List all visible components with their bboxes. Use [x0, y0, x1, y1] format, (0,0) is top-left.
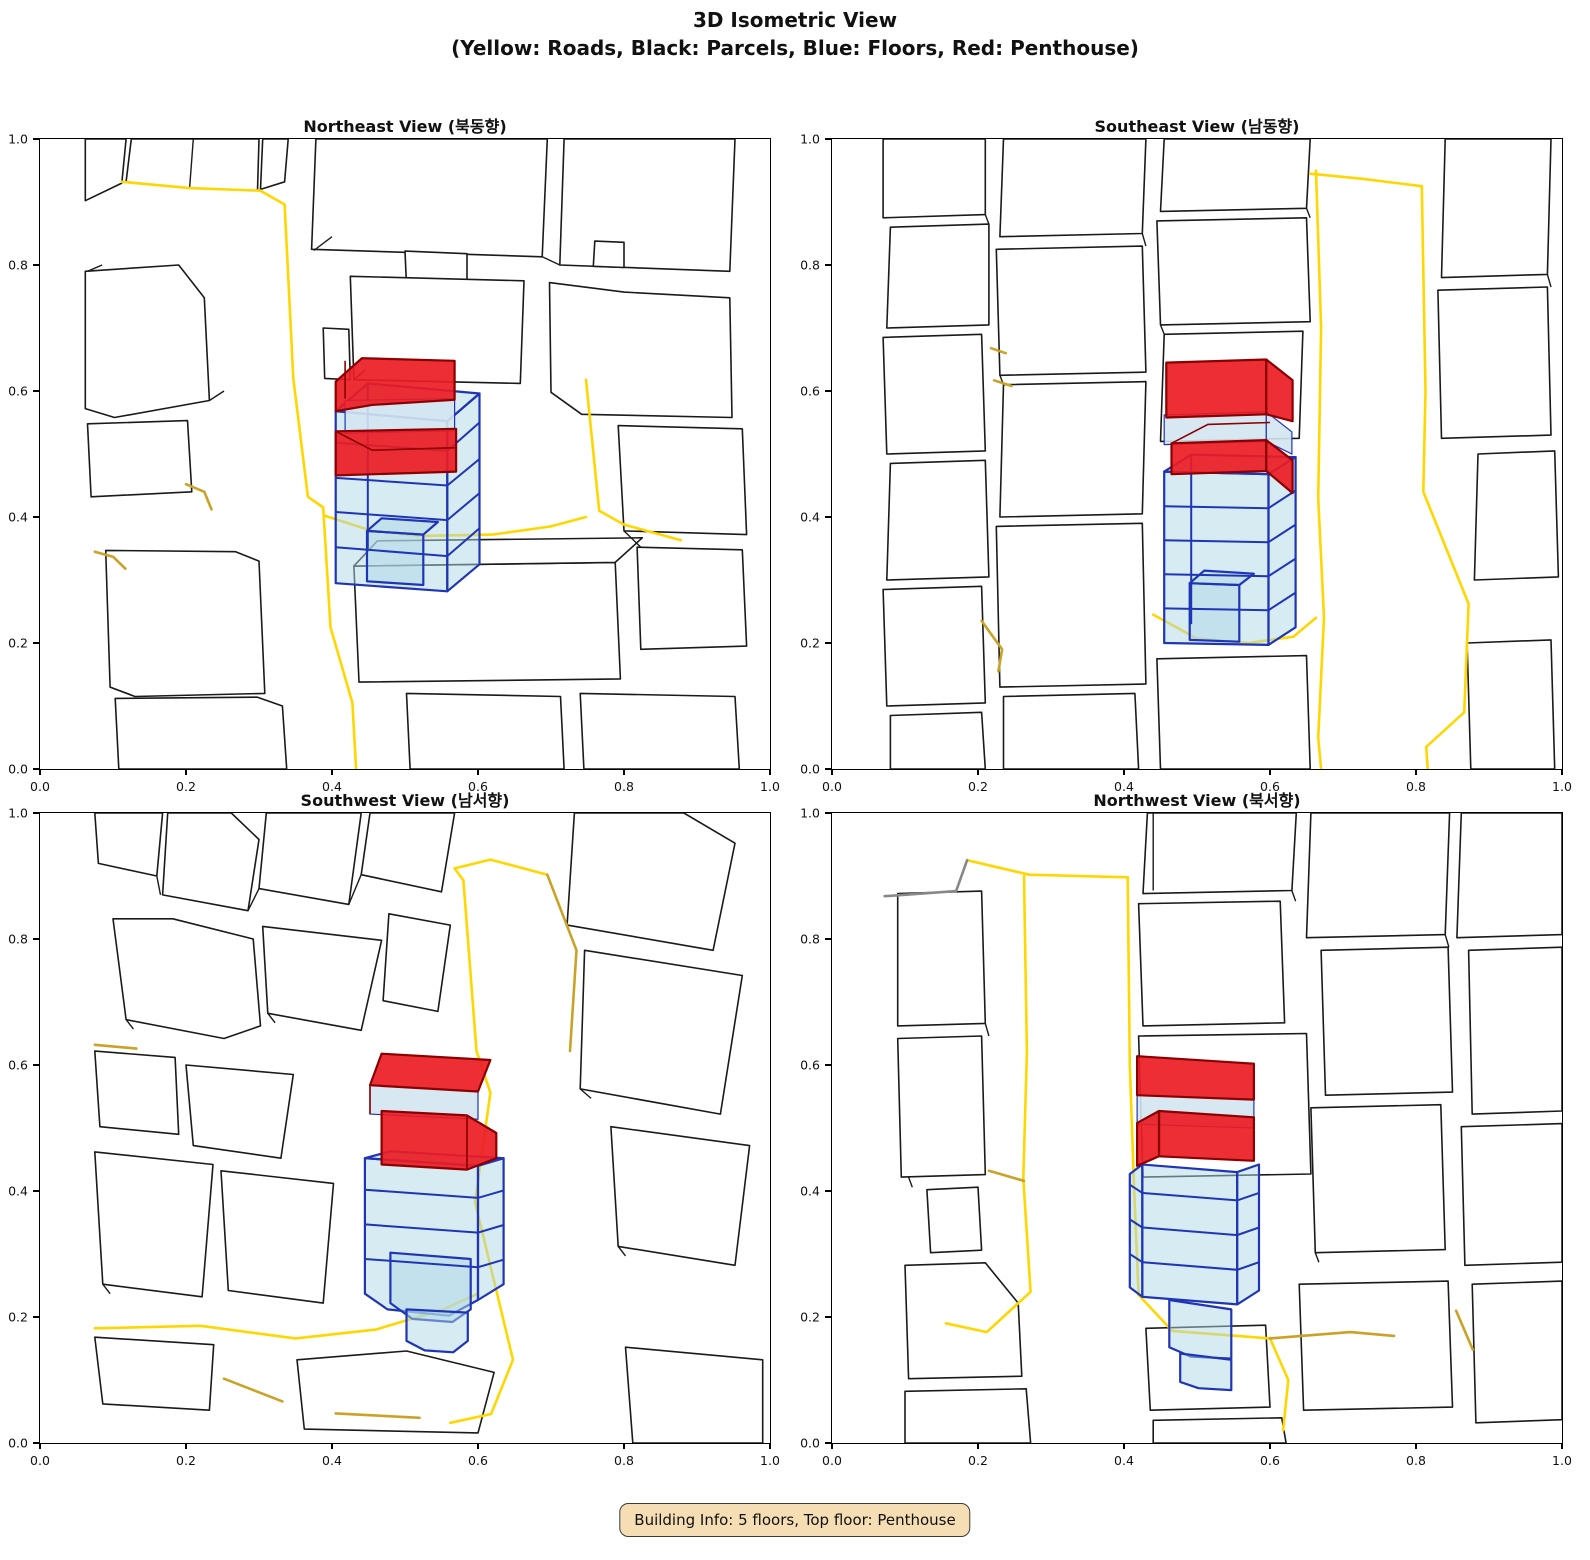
- y-tick-mark: [33, 938, 39, 940]
- y-tick-label: 0.8: [0, 932, 28, 947]
- x-tick-mark: [185, 769, 187, 775]
- y-tick-mark: [825, 812, 831, 814]
- parcel: [550, 283, 733, 418]
- subplot-southwest: Southwest View (남서향) 0.00.00.20.20.40.40…: [39, 812, 771, 1444]
- x-tick-label: 0.4: [1114, 1453, 1134, 1468]
- y-tick-mark: [33, 1064, 39, 1066]
- y-tick-label: 0.0: [0, 1436, 28, 1451]
- x-tick-label: 1.0: [1552, 1453, 1572, 1468]
- y-tick-mark: [33, 516, 39, 518]
- road: [1316, 171, 1324, 770]
- penthouse-face: [1159, 1111, 1254, 1161]
- parcel-edge: [1445, 935, 1449, 948]
- parcel: [263, 926, 382, 1030]
- penthouse-face: [1137, 1056, 1254, 1099]
- y-tick-mark: [33, 768, 39, 770]
- x-tick-mark: [477, 769, 479, 775]
- parcel: [1153, 1418, 1286, 1443]
- parcel: [887, 460, 989, 580]
- y-tick-label: 0.0: [0, 762, 28, 777]
- y-tick-label: 1.0: [0, 806, 28, 821]
- parcel: [1000, 139, 1146, 237]
- parcel: [115, 697, 287, 769]
- floor-face: [367, 531, 423, 585]
- x-tick-label: 0.8: [614, 1453, 634, 1468]
- parcel: [1157, 218, 1310, 325]
- subplot-title-southeast: Southeast View (남동향): [832, 113, 1562, 137]
- x-tick-mark: [977, 1443, 979, 1449]
- parcel-edge: [157, 876, 161, 895]
- parcel: [1161, 139, 1311, 211]
- parcel: [996, 246, 1146, 375]
- parcel: [383, 914, 450, 1012]
- y-tick-label: 0.6: [0, 384, 28, 399]
- x-tick-mark: [331, 769, 333, 775]
- x-tick-label: 0.8: [1406, 1453, 1426, 1468]
- x-tick-mark: [769, 769, 771, 775]
- subplot-northeast: Northeast View (북동향) 0.00.00.20.20.40.40…: [39, 138, 771, 770]
- y-tick-mark: [825, 1190, 831, 1192]
- y-tick-mark: [825, 264, 831, 266]
- parcel: [560, 139, 735, 271]
- penthouse-face: [336, 429, 456, 476]
- parcel-edge: [1315, 1253, 1319, 1263]
- road: [224, 1379, 282, 1402]
- x-tick-mark: [831, 769, 833, 775]
- x-tick-mark: [1561, 1443, 1563, 1449]
- y-tick-label: 1.0: [0, 132, 28, 147]
- parcel: [898, 891, 986, 1026]
- southeast-view-canvas: [832, 139, 1562, 769]
- x-tick-mark: [1123, 1443, 1125, 1449]
- parcel: [95, 1152, 213, 1297]
- parcel: [611, 1127, 750, 1266]
- y-tick-label: 0.6: [786, 384, 820, 399]
- southwest-view-canvas: [40, 813, 770, 1443]
- parcel: [1474, 451, 1558, 580]
- x-tick-mark: [769, 1443, 771, 1449]
- x-tick-mark: [185, 1443, 187, 1449]
- penthouse-face: [1166, 360, 1266, 418]
- road: [95, 1045, 137, 1049]
- northwest-view-canvas: [832, 813, 1562, 1443]
- floor-face: [1169, 1300, 1231, 1359]
- parcel: [883, 586, 985, 706]
- figure-title-line2: (Yellow: Roads, Black: Parcels, Blue: Fl…: [0, 34, 1590, 62]
- parcel-edge: [1161, 325, 1165, 334]
- y-tick-label: 0.2: [0, 1310, 28, 1325]
- building-info-badge: Building Info: 5 floors, Top floor: Pent…: [619, 1503, 970, 1537]
- penthouse-face: [1172, 440, 1267, 474]
- parcel: [890, 712, 985, 769]
- road: [967, 860, 1128, 877]
- x-tick-mark: [623, 1443, 625, 1449]
- parcel: [883, 139, 985, 218]
- road: [1456, 1311, 1473, 1350]
- x-tick-label: 1.0: [760, 1453, 780, 1468]
- parcel: [407, 693, 565, 769]
- parcel: [905, 1389, 1031, 1443]
- y-tick-mark: [825, 938, 831, 940]
- parcel: [1004, 693, 1139, 769]
- subplot-southeast: Southeast View (남동향) 0.00.00.20.20.40.40…: [831, 138, 1563, 770]
- parcel: [1157, 656, 1310, 769]
- parcel: [95, 813, 163, 876]
- parcel: [186, 1065, 293, 1158]
- parcel-edge: [1307, 208, 1311, 218]
- y-tick-mark: [33, 390, 39, 392]
- parcel: [580, 693, 739, 769]
- y-tick-label: 0.6: [0, 1058, 28, 1073]
- parcel: [1311, 1105, 1445, 1253]
- parcel: [927, 1187, 982, 1253]
- y-tick-mark: [825, 138, 831, 140]
- y-tick-mark: [825, 1064, 831, 1066]
- road: [1310, 174, 1422, 187]
- x-tick-mark: [477, 1443, 479, 1449]
- parcel: [361, 813, 454, 892]
- parcel: [95, 1051, 179, 1134]
- northeast-view-canvas: [40, 139, 770, 769]
- floor-face: [1180, 1354, 1231, 1391]
- parcel: [883, 334, 985, 454]
- figure-title: 3D Isometric View (Yellow: Roads, Black:…: [0, 6, 1590, 62]
- floor-face: [367, 518, 438, 534]
- parcel-edge: [1292, 891, 1296, 902]
- floor-face: [1130, 1165, 1143, 1297]
- y-tick-label: 0.0: [786, 1436, 820, 1451]
- y-tick-label: 0.6: [786, 1058, 820, 1073]
- y-tick-label: 0.4: [786, 1184, 820, 1199]
- x-tick-mark: [1123, 769, 1125, 775]
- parcel: [106, 550, 265, 696]
- parcel-edge: [985, 215, 989, 225]
- parcel: [221, 1171, 334, 1303]
- parcel: [85, 265, 209, 418]
- y-tick-label: 0.2: [786, 636, 820, 651]
- parcel: [1299, 1281, 1452, 1410]
- parcel: [1467, 640, 1555, 769]
- y-tick-mark: [33, 1316, 39, 1318]
- subplot-title-northwest: Northwest View (북서향): [832, 787, 1562, 811]
- x-tick-label: 0.6: [468, 1453, 488, 1468]
- x-tick-mark: [1269, 1443, 1271, 1449]
- y-tick-mark: [33, 264, 39, 266]
- penthouse-face: [382, 1111, 497, 1170]
- y-tick-mark: [825, 1442, 831, 1444]
- parcel: [85, 139, 126, 201]
- parcel: [618, 426, 746, 535]
- y-tick-label: 1.0: [786, 806, 820, 821]
- y-tick-label: 0.0: [786, 762, 820, 777]
- y-tick-mark: [825, 768, 831, 770]
- parcel-edge: [909, 1177, 913, 1187]
- parcel: [1307, 813, 1450, 938]
- y-tick-mark: [33, 812, 39, 814]
- y-tick-mark: [33, 1190, 39, 1192]
- x-tick-mark: [623, 769, 625, 775]
- x-tick-mark: [1415, 1443, 1417, 1449]
- x-tick-label: 0.2: [176, 1453, 196, 1468]
- parcel: [1438, 287, 1551, 438]
- y-tick-mark: [33, 642, 39, 644]
- y-tick-mark: [825, 1316, 831, 1318]
- x-tick-mark: [331, 1443, 333, 1449]
- parcel: [261, 139, 289, 189]
- y-tick-mark: [825, 516, 831, 518]
- figure-title-line1: 3D Isometric View: [0, 6, 1590, 34]
- x-tick-mark: [831, 1443, 833, 1449]
- parcel: [1143, 813, 1296, 894]
- parcel: [905, 1263, 1022, 1379]
- y-tick-label: 0.4: [786, 510, 820, 525]
- x-tick-mark: [39, 769, 41, 775]
- parcel: [996, 523, 1146, 687]
- parcel: [1442, 139, 1552, 278]
- y-tick-label: 0.2: [0, 636, 28, 651]
- parcel-edge: [985, 1023, 989, 1036]
- y-tick-mark: [825, 390, 831, 392]
- penthouse-face: [370, 1054, 490, 1092]
- parcel: [593, 241, 624, 267]
- parcel-edge: [542, 257, 560, 265]
- parcel: [567, 813, 735, 950]
- parcel: [163, 813, 259, 911]
- parcel: [637, 547, 747, 649]
- x-tick-mark: [977, 769, 979, 775]
- x-tick-label: 0.0: [822, 1453, 842, 1468]
- parcel: [887, 224, 989, 328]
- x-tick-label: 0.2: [968, 1453, 988, 1468]
- y-tick-mark: [33, 1442, 39, 1444]
- parcel: [95, 1337, 214, 1410]
- y-tick-label: 1.0: [786, 132, 820, 147]
- parcel: [259, 813, 361, 904]
- x-tick-label: 0.6: [1260, 1453, 1280, 1468]
- y-tick-mark: [33, 138, 39, 140]
- parcel: [898, 1036, 986, 1177]
- road: [989, 1171, 1024, 1181]
- floor-face: [1190, 583, 1240, 642]
- y-tick-label: 0.8: [786, 258, 820, 273]
- subplot-title-southwest: Southwest View (남서향): [40, 787, 770, 811]
- parcel: [1461, 1124, 1562, 1266]
- parcel: [1139, 901, 1285, 1026]
- x-tick-mark: [1269, 769, 1271, 775]
- subplot-northwest: Northwest View (북서향) 0.00.00.20.20.40.40…: [831, 812, 1563, 1444]
- x-tick-mark: [1415, 769, 1417, 775]
- x-tick-mark: [1561, 769, 1563, 775]
- parcel: [312, 139, 548, 257]
- parcel: [1457, 813, 1562, 938]
- parcel-edge: [1547, 274, 1551, 287]
- parcel-edge: [1142, 234, 1146, 247]
- x-tick-mark: [39, 1443, 41, 1449]
- parcel: [88, 421, 192, 497]
- road: [885, 860, 968, 896]
- x-tick-label: 0.4: [322, 1453, 342, 1468]
- floor-face: [407, 1309, 468, 1352]
- parcel: [1000, 382, 1146, 517]
- y-tick-label: 0.4: [0, 1184, 28, 1199]
- parcel: [1321, 947, 1452, 1095]
- parcel: [626, 1347, 763, 1443]
- parcel: [580, 950, 742, 1114]
- y-tick-label: 0.4: [0, 510, 28, 525]
- parcel: [1469, 947, 1562, 1114]
- parcel-edge: [209, 391, 224, 401]
- parcel: [1472, 1281, 1562, 1423]
- y-tick-label: 0.8: [786, 932, 820, 947]
- y-tick-label: 0.8: [0, 258, 28, 273]
- parcel: [113, 919, 261, 1039]
- subplot-title-northeast: Northeast View (북동향): [40, 113, 770, 137]
- x-tick-label: 0.0: [30, 1453, 50, 1468]
- y-tick-label: 0.2: [786, 1310, 820, 1325]
- road: [455, 860, 548, 875]
- y-tick-mark: [825, 642, 831, 644]
